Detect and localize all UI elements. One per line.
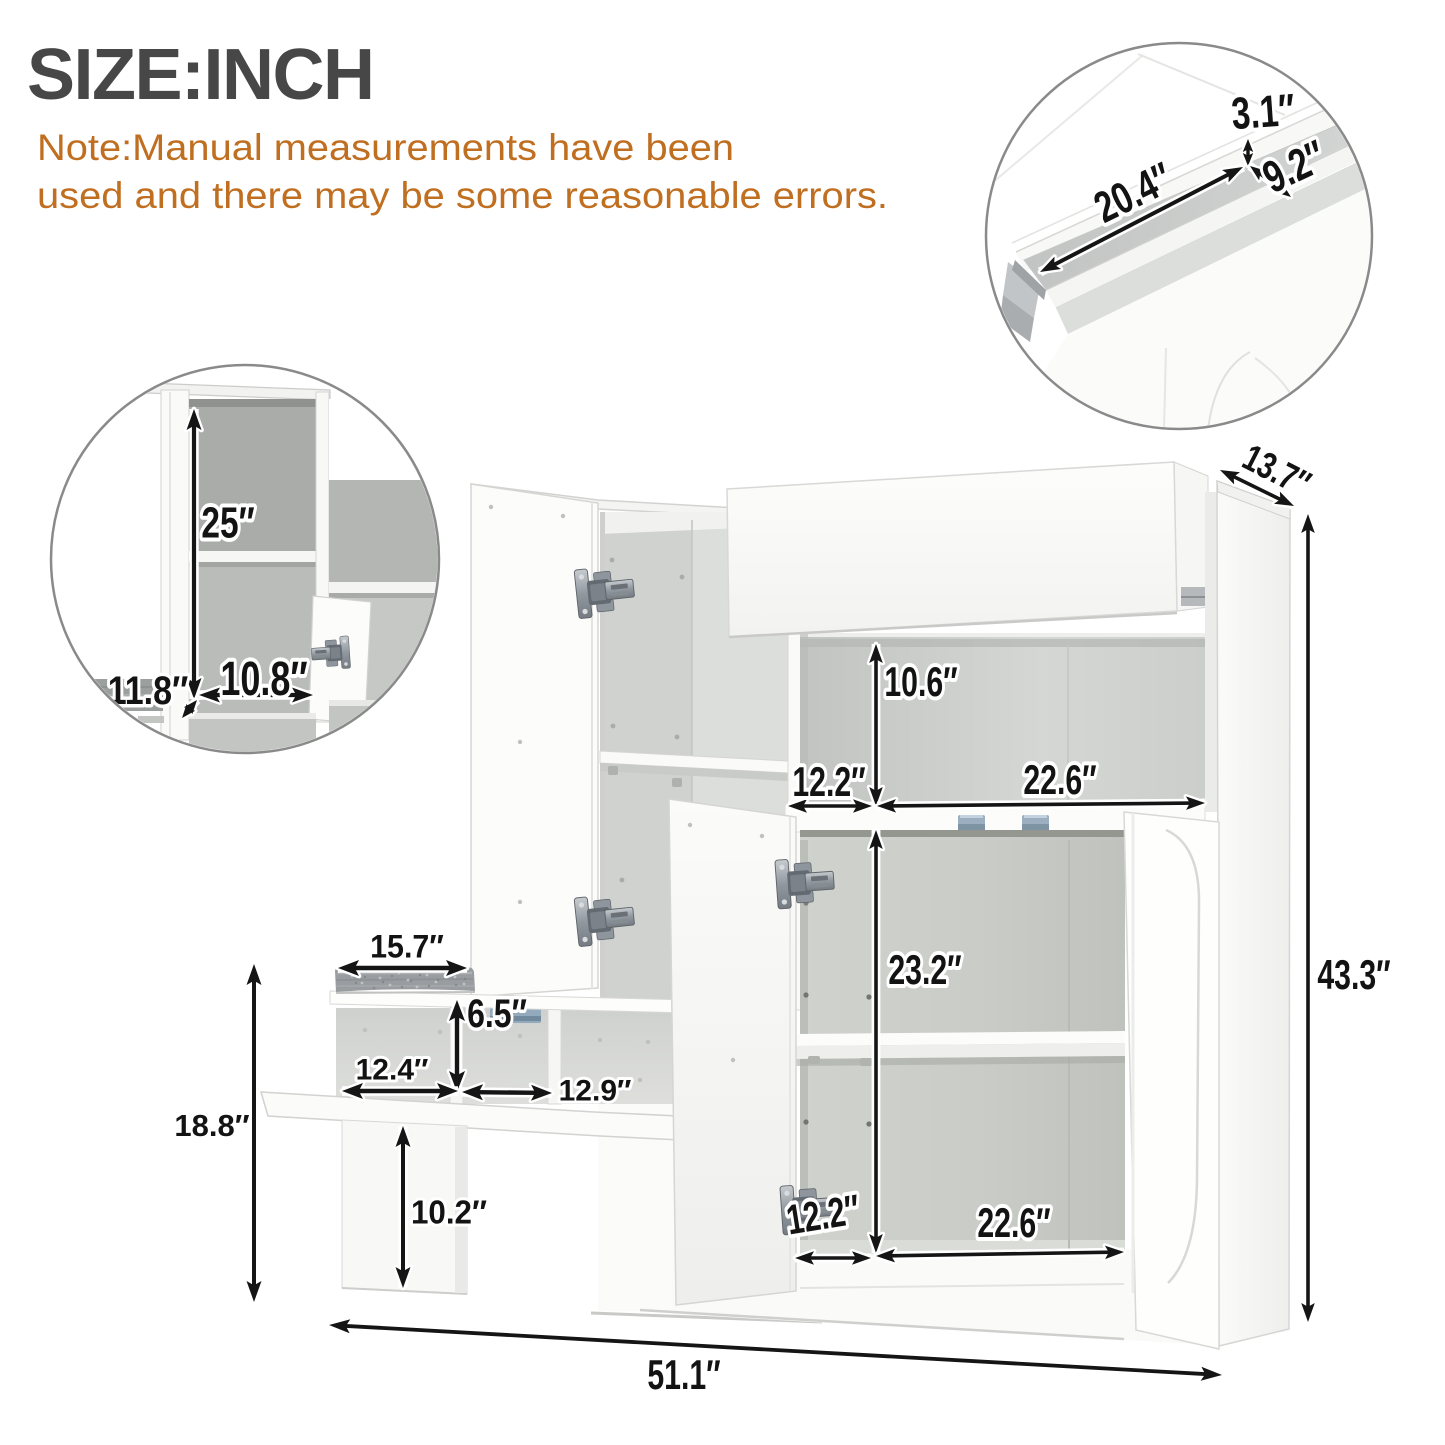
svg-text:used and there may be some rea: used and there may be some reasonable er…	[37, 175, 888, 216]
svg-text:43.3″: 43.3″	[1317, 951, 1390, 998]
svg-text:Note:Manual measurements have: Note:Manual measurements have been	[37, 127, 734, 168]
svg-text:10.8″: 10.8″	[220, 652, 307, 705]
svg-text:15.7″: 15.7″	[370, 929, 444, 965]
svg-text:12.9″: 12.9″	[559, 1075, 632, 1108]
svg-text:23.2″: 23.2″	[888, 946, 961, 993]
svg-text:10.6″: 10.6″	[884, 658, 957, 705]
svg-text:51.1″: 51.1″	[647, 1351, 720, 1398]
svg-text:18.8″: 18.8″	[174, 1108, 249, 1143]
svg-text:6.5″: 6.5″	[467, 991, 527, 1036]
svg-text:25″: 25″	[201, 499, 254, 547]
svg-text:22.6″: 22.6″	[1023, 756, 1096, 803]
svg-text:3.1″: 3.1″	[1230, 85, 1296, 139]
svg-text:12.4″: 12.4″	[356, 1054, 429, 1087]
svg-text:10.2″: 10.2″	[411, 1194, 487, 1231]
svg-text:22.6″: 22.6″	[977, 1199, 1050, 1246]
svg-text:12.2″: 12.2″	[792, 758, 865, 805]
svg-text:SIZE:INCH: SIZE:INCH	[27, 35, 374, 115]
